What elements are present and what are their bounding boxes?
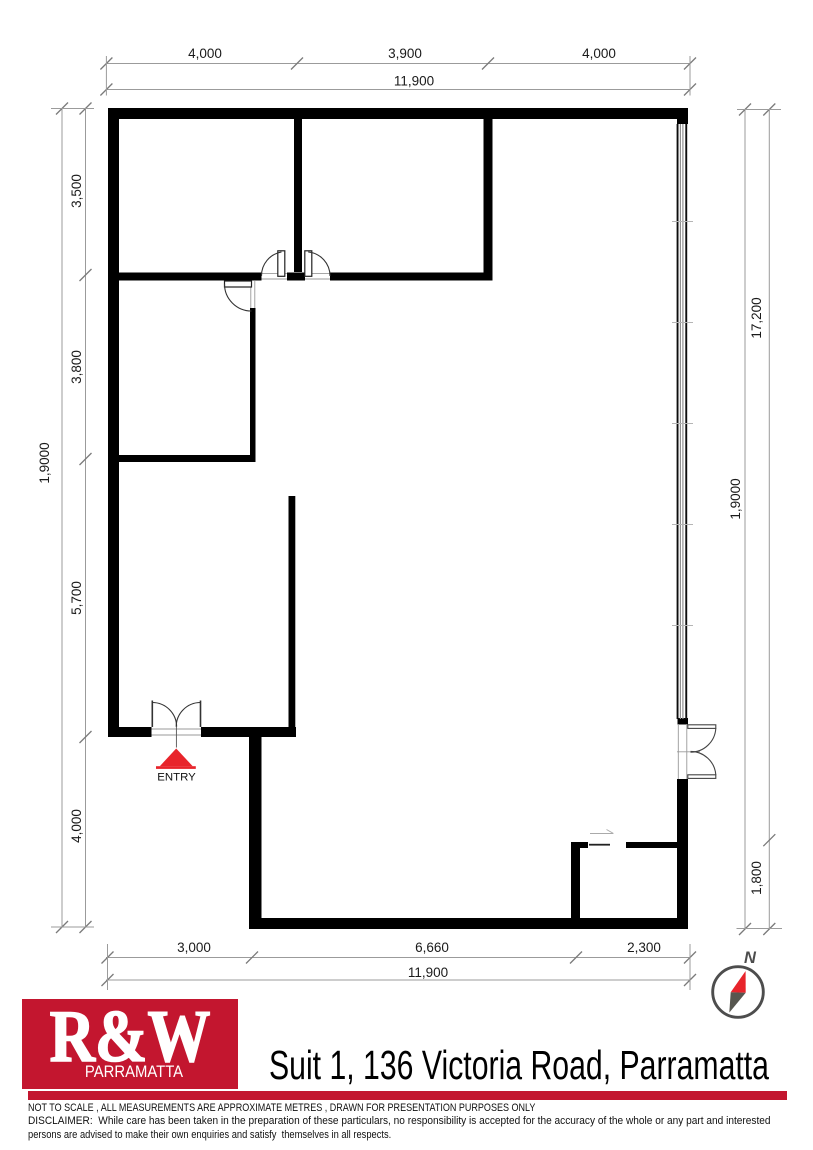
svg-text:3,500: 3,500	[69, 174, 84, 208]
svg-text:4,000: 4,000	[69, 809, 84, 843]
svg-text:ENTRY: ENTRY	[157, 772, 196, 784]
svg-text:3,000: 3,000	[177, 940, 211, 955]
svg-text:N: N	[744, 949, 757, 967]
svg-text:6,660: 6,660	[415, 940, 449, 955]
svg-text:5,700: 5,700	[69, 581, 84, 615]
svg-text:2,300: 2,300	[627, 940, 661, 955]
svg-text:4,000: 4,000	[582, 46, 616, 61]
svg-text:4,000: 4,000	[188, 46, 222, 61]
svg-text:11,900: 11,900	[408, 965, 448, 980]
svg-text:1,9000: 1,9000	[37, 442, 52, 483]
svg-text:1,9000: 1,9000	[728, 478, 743, 519]
svg-text:1,800: 1,800	[749, 861, 764, 895]
svg-text:17,200: 17,200	[749, 297, 764, 338]
svg-text:3,800: 3,800	[69, 350, 84, 384]
svg-text:11,900: 11,900	[394, 74, 434, 89]
svg-text:3,900: 3,900	[388, 46, 422, 61]
